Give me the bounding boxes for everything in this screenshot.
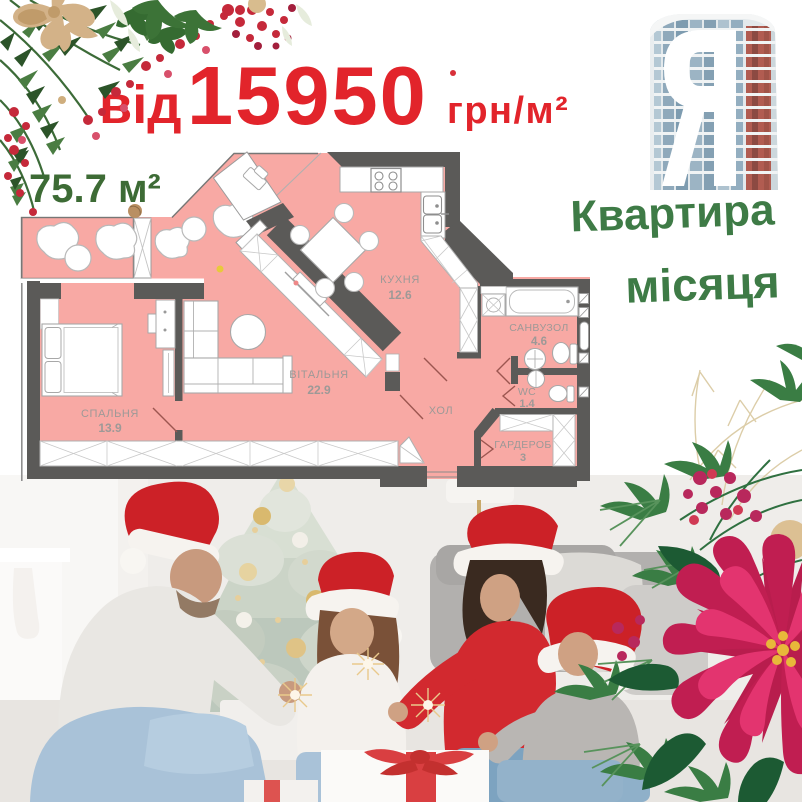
- svg-text:WC: WC: [518, 386, 536, 398]
- svg-text:22.9: 22.9: [307, 383, 331, 397]
- svg-text:75.7 м²: 75.7 м²: [29, 167, 161, 211]
- svg-text:грн/м²: грн/м²: [447, 90, 569, 132]
- svg-text:КУХНЯ: КУХНЯ: [380, 274, 420, 286]
- svg-text:Квартира: Квартира: [570, 185, 776, 241]
- svg-text:ВІТАЛЬНЯ: ВІТАЛЬНЯ: [289, 369, 348, 381]
- svg-text:САНВУЗОЛ: САНВУЗОЛ: [509, 322, 568, 334]
- svg-text:12.6: 12.6: [388, 288, 412, 302]
- svg-text:СПАЛЬНЯ: СПАЛЬНЯ: [81, 408, 139, 420]
- svg-text:3: 3: [520, 452, 526, 464]
- svg-text:4.6: 4.6: [531, 336, 547, 348]
- svg-text:13.9: 13.9: [98, 421, 122, 435]
- svg-text:ХОЛ: ХОЛ: [429, 405, 453, 417]
- svg-text:ГАРДЕРОБ: ГАРДЕРОБ: [494, 439, 551, 451]
- svg-text:1.4: 1.4: [519, 398, 535, 410]
- svg-text:15950: 15950: [187, 49, 428, 142]
- svg-text:місяця: місяця: [624, 255, 780, 312]
